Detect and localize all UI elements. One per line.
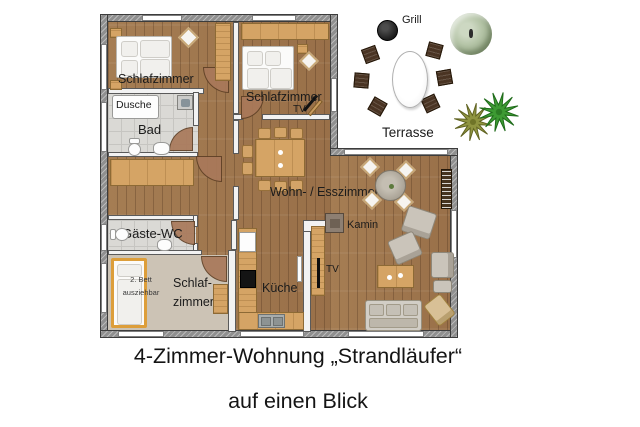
wall-exterior-top	[100, 14, 338, 22]
round-table	[375, 170, 406, 201]
kitchen-sink	[258, 314, 285, 328]
armchair-beige	[431, 252, 454, 278]
sideboard	[441, 169, 452, 209]
sofa	[365, 300, 422, 331]
window-left-bedroom1	[101, 44, 107, 90]
dining-chair	[242, 162, 253, 175]
wall-hall-living-upper	[233, 120, 239, 154]
wall-bedroom3-right	[228, 250, 236, 332]
kitchen-radiator	[297, 256, 302, 282]
plant-green-icon	[477, 90, 521, 134]
terrace-chair	[353, 72, 369, 88]
label-bedroom3-line2: zimmer	[173, 295, 214, 309]
terrace-chair	[367, 96, 387, 116]
fireplace-box	[325, 213, 344, 233]
window-terrace-door	[344, 149, 448, 155]
window-left-guest-wc	[101, 224, 107, 251]
dining-chair	[274, 127, 287, 138]
toilet-guest-wc	[110, 228, 129, 241]
sink-guest-wc	[157, 239, 172, 251]
label-guest-wc: Gäste-WC	[122, 226, 183, 242]
desk-bedroom3	[213, 284, 228, 314]
wall-bedroom3-top	[108, 250, 202, 255]
window-right-living	[451, 210, 457, 258]
wardrobe-hallway	[110, 159, 194, 186]
label-bedroom3: Schlaf- zimmer	[173, 274, 214, 313]
label-bedroom3-line1: Schlaf-	[173, 276, 212, 290]
label-tv-living: TV	[326, 264, 339, 277]
window-bedroom2-side	[331, 78, 337, 112]
window-bottom-bedroom3	[118, 331, 164, 337]
label-extra-bed-line2: ausziehbar	[123, 288, 160, 297]
label-shower: Dusche	[116, 99, 152, 112]
wall-kitchen-left-stub	[231, 220, 237, 250]
dining-chair	[242, 145, 253, 158]
wall-bath-right-upper	[193, 92, 199, 126]
kitchen-fridge	[239, 232, 256, 252]
dining-chair	[258, 128, 271, 139]
wall-bedroom1-bottom	[108, 88, 204, 94]
floorplan-page: Schlafzimmer Schlafzimmer TV Dusche Bad …	[0, 0, 640, 427]
ottoman	[433, 280, 452, 293]
bed-bedroom2	[242, 46, 294, 90]
wall-hall-living-lower	[233, 186, 239, 220]
window-bottom-kitchen	[240, 331, 304, 337]
toilet-bathroom	[128, 138, 141, 156]
tv-icon-living	[317, 258, 320, 288]
label-bedroom2: Schlafzimmer	[246, 90, 322, 106]
label-extra-bed: 2. Bett ausziehbar	[116, 274, 166, 300]
label-extra-bed-line1: 2. Bett	[130, 275, 152, 284]
dining-table	[255, 139, 305, 177]
terrace-chair	[436, 69, 453, 86]
label-fireplace: Kamin	[347, 219, 378, 233]
window-top-bedroom1	[142, 15, 182, 21]
terrace-chair	[425, 41, 443, 59]
wall-bedroom1-bedroom2	[233, 22, 239, 114]
label-grill: Grill	[402, 14, 422, 28]
wall-wc-top	[108, 215, 196, 220]
dining-chair	[290, 128, 303, 139]
caption-title: 4-Zimmer-Wohnung „Strandläufer“	[0, 344, 596, 369]
window-bottom-living	[348, 331, 424, 337]
label-bedroom1: Schlafzimmer	[118, 72, 194, 88]
sink-bathroom	[153, 142, 170, 155]
wall-kitchen-living	[303, 220, 311, 332]
window-top-bedroom2	[252, 15, 296, 21]
caption-subtitle: auf einen Blick	[0, 389, 596, 414]
terrace-chair	[361, 45, 380, 64]
coffee-table	[377, 265, 414, 288]
washing-machine-icon	[177, 95, 193, 110]
label-tv-bedroom2: TV	[293, 104, 306, 117]
terrace-table	[392, 51, 428, 108]
label-kitchen: Küche	[262, 281, 297, 297]
window-left-bathroom	[101, 102, 107, 152]
wall-bath-bottom	[108, 152, 198, 157]
label-bathroom: Bad	[138, 122, 161, 138]
wardrobe-bedroom2	[241, 23, 329, 40]
plant-pale-icon	[450, 13, 492, 55]
label-terrace: Terrasse	[382, 125, 434, 142]
wardrobe-bedroom1	[215, 23, 231, 81]
kitchen-stove	[240, 270, 256, 288]
window-left-bedroom3	[101, 263, 107, 313]
grill-icon	[377, 20, 398, 41]
